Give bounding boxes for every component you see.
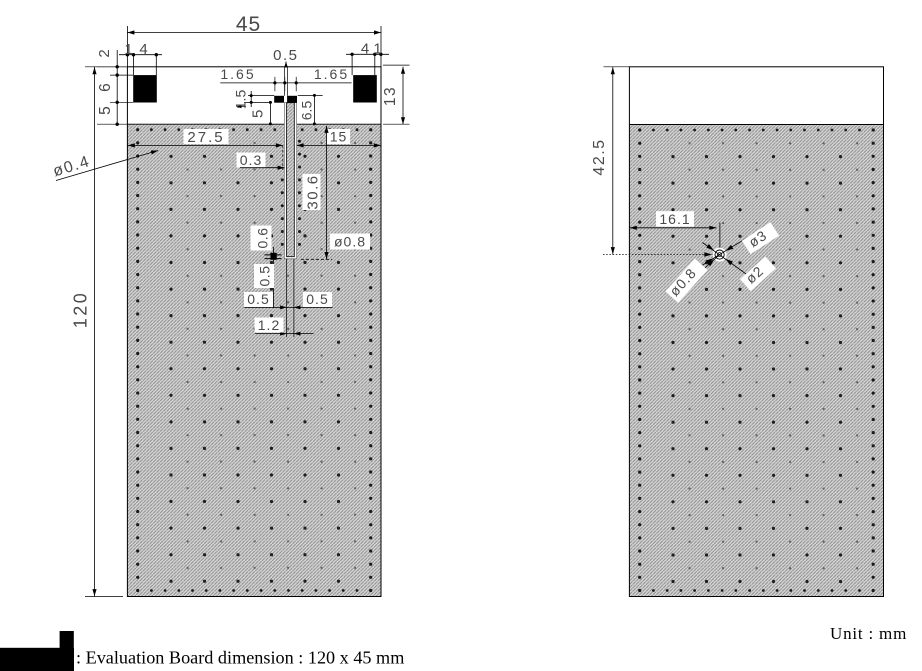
svg-text:1.65: 1.65 — [314, 66, 349, 82]
svg-text:Unit : mm: Unit : mm — [830, 624, 907, 643]
svg-text:4: 4 — [139, 41, 147, 58]
svg-text:0.3: 0.3 — [240, 152, 262, 168]
svg-text:ø0.8: ø0.8 — [334, 234, 366, 250]
svg-text:0.5: 0.5 — [306, 291, 328, 307]
svg-text:0.6: 0.6 — [255, 228, 271, 249]
svg-text:1.5: 1.5 — [233, 90, 249, 110]
svg-text:16.1: 16.1 — [659, 211, 690, 227]
svg-text:1: 1 — [124, 41, 132, 58]
svg-text:13: 13 — [382, 86, 399, 106]
svg-text:0.5: 0.5 — [257, 266, 273, 287]
svg-text:15: 15 — [330, 129, 348, 145]
svg-text:0.5: 0.5 — [247, 291, 269, 307]
svg-text:27.5: 27.5 — [187, 129, 224, 146]
svg-text:45: 45 — [236, 13, 261, 36]
svg-text:42.5: 42.5 — [591, 138, 608, 175]
svg-text:5: 5 — [250, 110, 267, 118]
svg-text:1.2: 1.2 — [258, 317, 280, 333]
svg-text:2: 2 — [96, 49, 113, 57]
svg-text:30.6: 30.6 — [305, 174, 322, 209]
svg-text:1: 1 — [373, 41, 381, 58]
svg-text:120: 120 — [71, 291, 91, 329]
svg-text:1.65: 1.65 — [220, 66, 255, 82]
svg-text:4: 4 — [361, 41, 369, 58]
svg-text:5: 5 — [97, 106, 114, 115]
svg-text:0.5: 0.5 — [273, 47, 298, 64]
svg-text:: Evaluation Board dimension :: : Evaluation Board dimension : 120 x 45 … — [76, 648, 404, 668]
svg-text:6.5: 6.5 — [299, 101, 315, 121]
svg-text:6: 6 — [97, 83, 114, 92]
